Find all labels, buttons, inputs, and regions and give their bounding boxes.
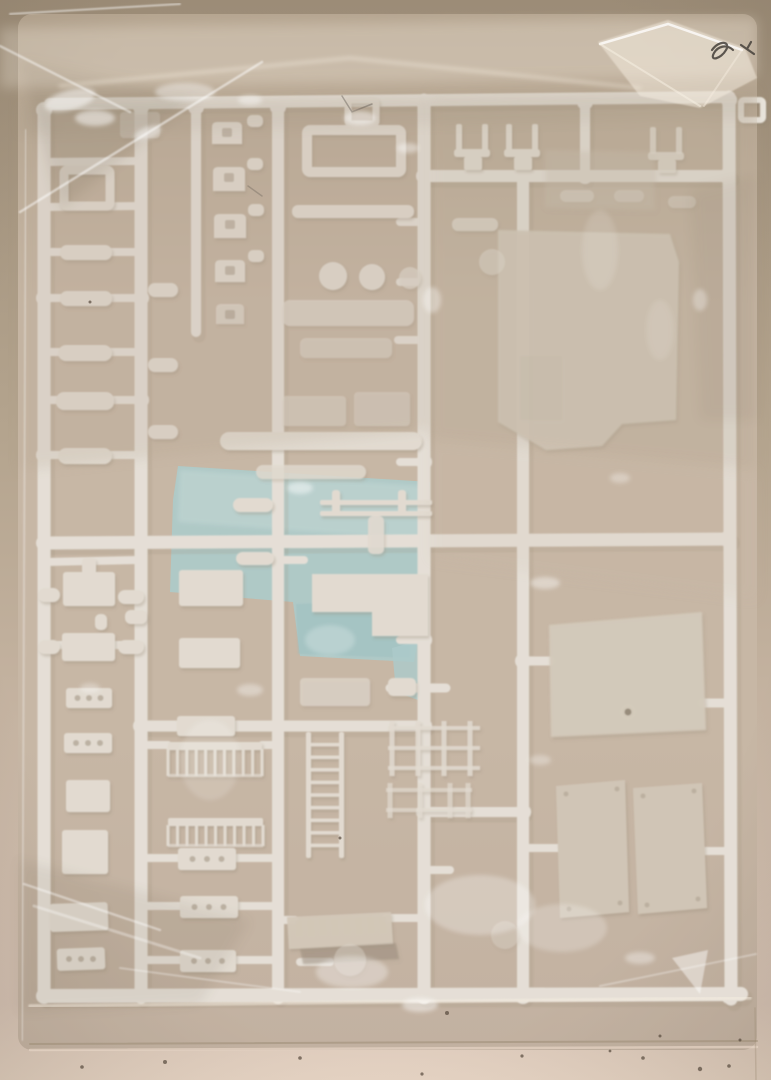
bag-glint [582, 210, 618, 290]
photo-model-kit-sprue-in-bag [0, 0, 771, 1080]
bag-glint [237, 684, 263, 696]
photo-svg [0, 0, 771, 1080]
dust-speck [89, 301, 92, 304]
dust-speck [727, 1064, 731, 1068]
bag-glint [180, 720, 240, 800]
bag-glint [397, 143, 419, 153]
bag-glint [155, 83, 215, 101]
dust-speck [659, 1035, 662, 1038]
bag-glint [238, 95, 262, 105]
dust-speck [339, 837, 342, 840]
bag-glint [80, 683, 100, 693]
bag-glint [287, 482, 313, 494]
dust-speck [163, 1060, 167, 1064]
dust-speck [609, 1050, 612, 1053]
bag-glint [423, 287, 441, 313]
bag-glint [75, 110, 115, 126]
dust-speck [520, 1054, 523, 1057]
bag-glint [530, 577, 560, 589]
bag-glint [625, 952, 655, 964]
bag-glint [305, 625, 355, 655]
bag-glint [517, 904, 607, 952]
bag-wrinkle [755, 1008, 756, 1080]
dust-speck [698, 1067, 702, 1071]
dust-speck [420, 1072, 423, 1075]
bag-glint [402, 998, 438, 1012]
dust-speck [445, 1011, 449, 1015]
dust-speck [80, 1065, 84, 1069]
dust-speck [298, 1056, 302, 1060]
bag-glint [646, 300, 674, 360]
bag-glint [344, 111, 376, 125]
bag-glint [316, 956, 388, 988]
dust-speck [641, 1056, 645, 1060]
dust-speck [739, 1039, 742, 1042]
bag-glint [529, 755, 551, 765]
bag-glint [610, 473, 630, 483]
bag-glint [693, 289, 707, 311]
